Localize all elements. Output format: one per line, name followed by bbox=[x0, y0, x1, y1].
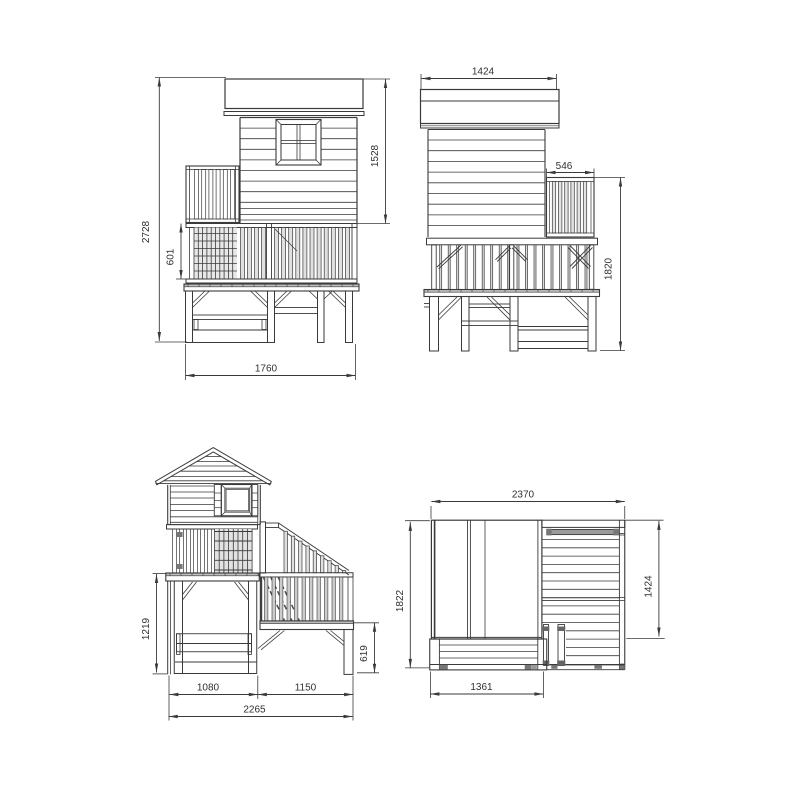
svg-text:1822: 1822 bbox=[395, 589, 406, 612]
svg-text:1424: 1424 bbox=[644, 575, 655, 598]
svg-text:1219: 1219 bbox=[141, 617, 152, 640]
svg-text:1080: 1080 bbox=[197, 683, 220, 694]
svg-text:1424: 1424 bbox=[472, 67, 495, 78]
svg-text:2370: 2370 bbox=[512, 490, 535, 501]
svg-text:601: 601 bbox=[166, 248, 177, 265]
svg-text:2728: 2728 bbox=[141, 220, 152, 243]
svg-text:546: 546 bbox=[556, 161, 573, 172]
svg-text:1150: 1150 bbox=[295, 683, 317, 694]
svg-text:2265: 2265 bbox=[243, 705, 266, 716]
svg-text:1820: 1820 bbox=[604, 257, 615, 280]
svg-text:1361: 1361 bbox=[470, 682, 493, 693]
svg-text:1528: 1528 bbox=[370, 144, 381, 167]
svg-text:619: 619 bbox=[359, 645, 370, 662]
svg-text:1760: 1760 bbox=[255, 364, 278, 375]
